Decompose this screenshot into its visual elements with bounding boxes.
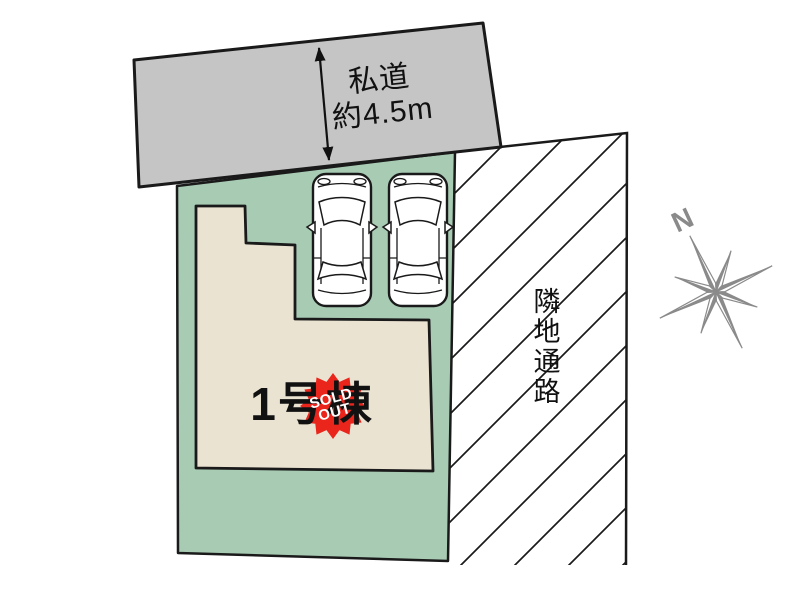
compass-icon: N <box>620 180 799 375</box>
passage-label: 隣地通路 <box>526 287 565 407</box>
compass-north-label: N <box>667 202 698 239</box>
car-icon-2 <box>383 174 453 306</box>
site-plan: N 私道 約4.5m 1号棟 SOLD OUT 隣地通路 <box>0 0 800 602</box>
road-width-label: 私道 約4.5m <box>327 58 435 136</box>
car-icon-1 <box>307 174 377 306</box>
